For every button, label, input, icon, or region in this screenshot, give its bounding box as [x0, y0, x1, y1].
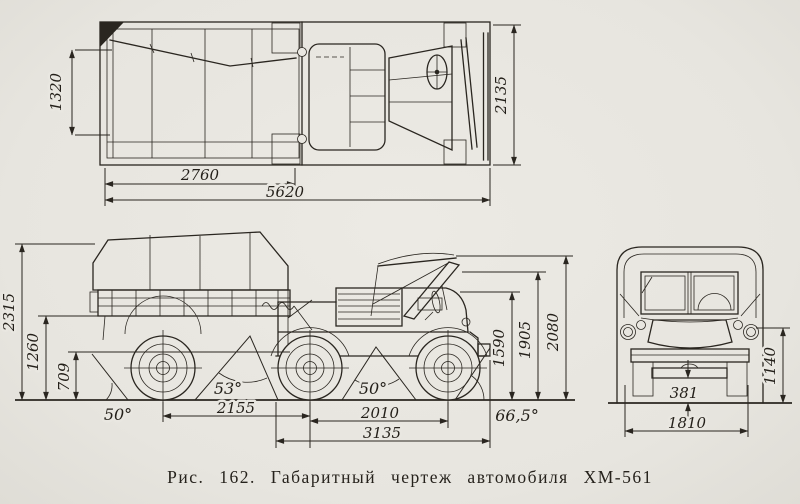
dim-rear-wheelbase: 2155	[216, 399, 255, 417]
dim-windshield-height: 1905	[516, 321, 534, 359]
windshield-side	[404, 262, 459, 319]
top-view-dimensions: 1320 2760 5620 2135	[47, 25, 521, 206]
windshield-front	[641, 272, 738, 314]
dim-front-ramp-angle: 50°	[359, 379, 387, 398]
dim-bed-length: 2760	[180, 166, 220, 184]
steering-wheel-front	[698, 294, 731, 310]
dim-overall-length: 5620	[266, 183, 305, 201]
dim-trailer-height: 2315	[0, 293, 18, 332]
dim-rear-ramp-angle: 53°	[214, 379, 242, 398]
front-view-body	[617, 247, 763, 403]
dim-overall-width: 2135	[492, 76, 510, 115]
top-view: 1320 2760 5620 2135	[47, 22, 521, 206]
figure-caption: Рис. 162. Габаритный чертеж автомобиля Х…	[167, 467, 653, 487]
side-view: 2315 1260 709 50° 53° 50° 66,5° 2155 201…	[0, 232, 575, 448]
dim-front-wheelbase: 2010	[360, 404, 400, 422]
dim-ground-clearance: 381	[670, 384, 699, 402]
top-view-rear-wheel	[272, 134, 300, 164]
dim-approach-angle: 66,5°	[495, 406, 539, 425]
dim-hitch-height: 709	[55, 362, 73, 391]
dim-tractor-length: 3135	[363, 424, 401, 442]
steering-wheel-plan	[427, 55, 447, 89]
wiper	[642, 277, 652, 293]
dim-inner-width: 1320	[47, 72, 65, 111]
bumper-front	[631, 349, 749, 362]
dim-fender-height: 1140	[761, 346, 779, 385]
top-view-rear-wheel	[272, 23, 300, 53]
dim-floor-height: 1260	[24, 332, 42, 371]
headlights	[621, 321, 759, 340]
front-view-left-wheel	[633, 362, 653, 396]
front-view-right-wheel	[727, 362, 747, 396]
front-view: 381 1810 1140	[608, 247, 792, 437]
scanned-page: 1320 2760 5620 2135	[0, 0, 800, 504]
dim-departure-angle: 50°	[104, 405, 132, 424]
top-view-front-wheel	[444, 23, 466, 47]
hood-front	[648, 320, 732, 348]
headlight-side	[462, 318, 470, 326]
front-wheel	[409, 330, 487, 406]
top-view-seats	[309, 44, 385, 150]
dim-track: 1810	[668, 414, 707, 432]
dimensional-drawing: 1320 2760 5620 2135	[0, 0, 800, 504]
dim-hood-height: 1590	[490, 328, 508, 367]
top-view-body	[100, 22, 490, 165]
front-view-dimensions: 381 1810 1140	[625, 328, 790, 437]
trailer-wheel	[124, 330, 202, 406]
top-view-front-wheel	[444, 140, 466, 164]
dim-overall-height: 2080	[544, 312, 562, 352]
middle-wheel	[271, 330, 349, 406]
